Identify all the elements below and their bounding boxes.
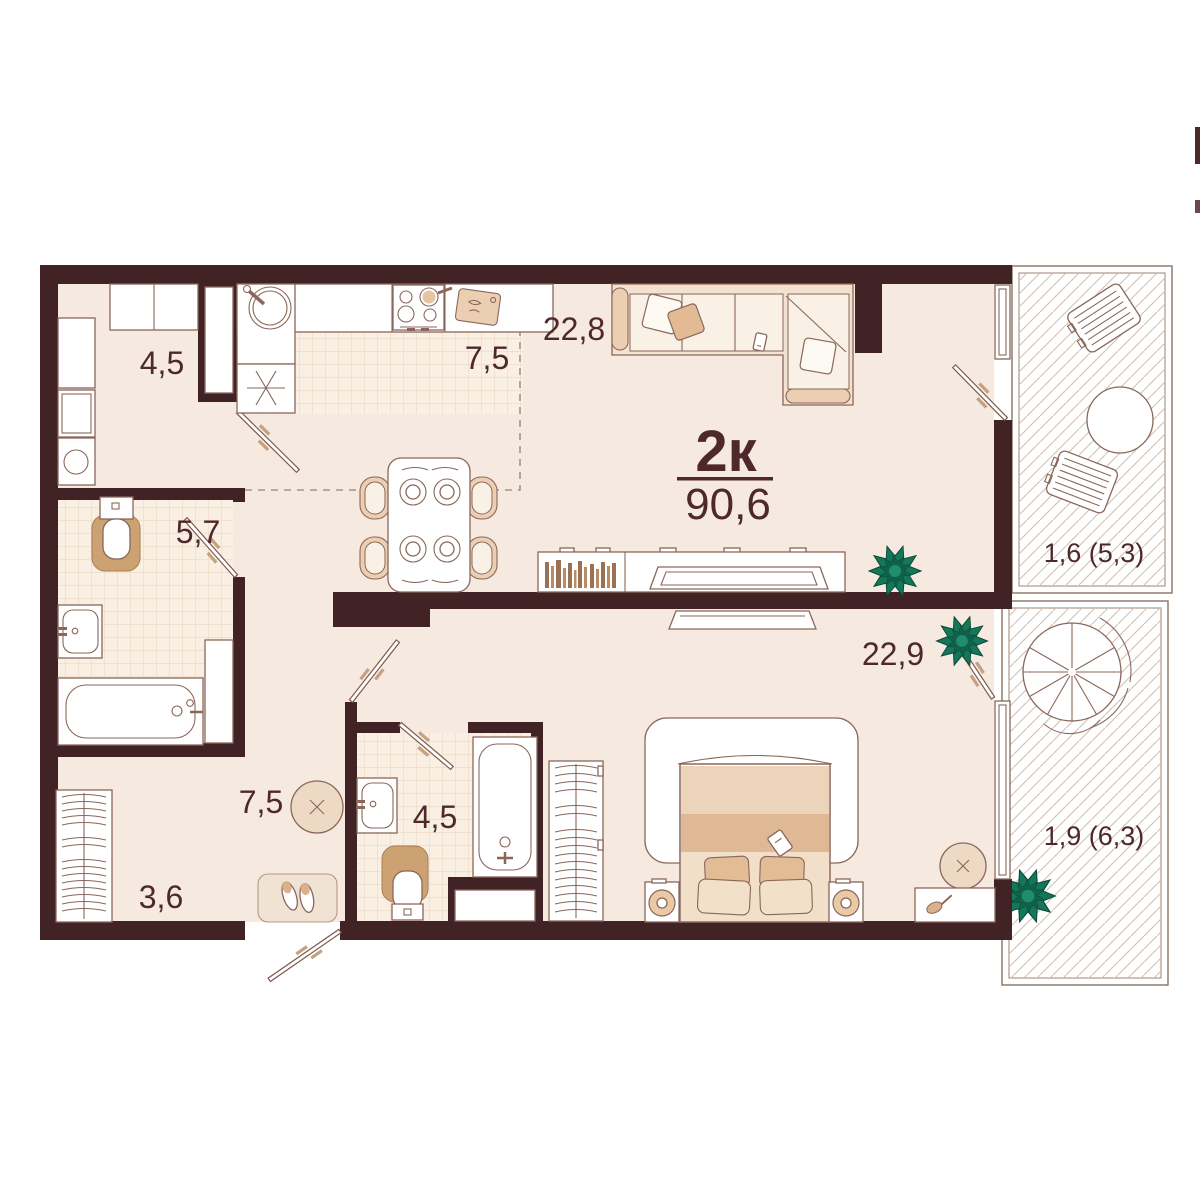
label-wardrobe-area: 3,6 bbox=[139, 879, 183, 915]
stove bbox=[393, 285, 452, 331]
label-kitchen-area: 7,5 bbox=[465, 340, 509, 376]
dining-chair bbox=[467, 477, 497, 519]
window-living-balcony bbox=[995, 285, 1010, 359]
plan-type-label: 2к bbox=[695, 419, 757, 484]
label-hallway-area: 7,5 bbox=[239, 784, 283, 820]
dining-table bbox=[388, 458, 470, 592]
tv-bedroom bbox=[669, 611, 816, 629]
label-bathroom-second-area: 4,5 bbox=[413, 799, 457, 835]
label-bathroom-main-area: 5,7 bbox=[176, 514, 220, 550]
sofa-armrest bbox=[612, 288, 628, 350]
bedroom-doorway bbox=[455, 890, 535, 921]
dining-chair bbox=[360, 477, 390, 519]
label-balcony-upper-area: 1,6 (5,3) bbox=[1044, 538, 1145, 568]
media-console bbox=[538, 548, 845, 592]
dining-chair bbox=[467, 537, 497, 579]
label-bedroom-area: 22,9 bbox=[862, 636, 924, 672]
bathtub-second bbox=[473, 737, 537, 877]
wall-shaft-bath bbox=[205, 640, 233, 743]
dressing-table bbox=[915, 888, 995, 922]
dining-chair bbox=[360, 537, 390, 579]
sink-second bbox=[356, 778, 397, 833]
nightstand bbox=[645, 879, 679, 922]
dryer bbox=[58, 390, 95, 437]
toilet-main bbox=[100, 497, 133, 559]
bed-pillow bbox=[759, 879, 812, 915]
sofa-armrest bbox=[786, 389, 850, 403]
bed-pillow bbox=[697, 879, 751, 916]
sink-main bbox=[57, 605, 102, 658]
window-bedroom-balcony bbox=[995, 701, 1010, 879]
nightstand bbox=[829, 879, 863, 922]
label-living-area: 22,8 bbox=[543, 311, 605, 347]
wardrobe-rack bbox=[56, 790, 112, 922]
bed bbox=[678, 756, 832, 923]
balcony-table bbox=[1087, 387, 1153, 453]
fridge bbox=[237, 364, 295, 413]
floor-plan-svg: 4,5 7,5 22,8 5,7 7,5 4,5 3,6 22,9 1,6 (5… bbox=[0, 0, 1200, 1200]
toilet-second bbox=[392, 871, 423, 920]
bathtub-main bbox=[58, 678, 203, 745]
balcony-lower bbox=[1001, 601, 1168, 985]
door-entrance bbox=[265, 925, 344, 986]
wall-shaft-top bbox=[205, 287, 233, 393]
tv-living bbox=[650, 567, 828, 589]
edge-artifact bbox=[1195, 200, 1200, 213]
plan-total-area: 90,6 bbox=[685, 480, 771, 529]
cutting-board bbox=[455, 288, 501, 326]
label-balcony-lower-area: 1,9 (6,3) bbox=[1044, 821, 1145, 851]
bedroom-wardrobe-rack bbox=[549, 761, 603, 921]
edge-artifact bbox=[1195, 127, 1200, 164]
label-laundry-area: 4,5 bbox=[140, 345, 184, 381]
sofa-pillow bbox=[799, 337, 836, 374]
floor-plan: 4,5 7,5 22,8 5,7 7,5 4,5 3,6 22,9 1,6 (5… bbox=[0, 0, 1200, 1200]
